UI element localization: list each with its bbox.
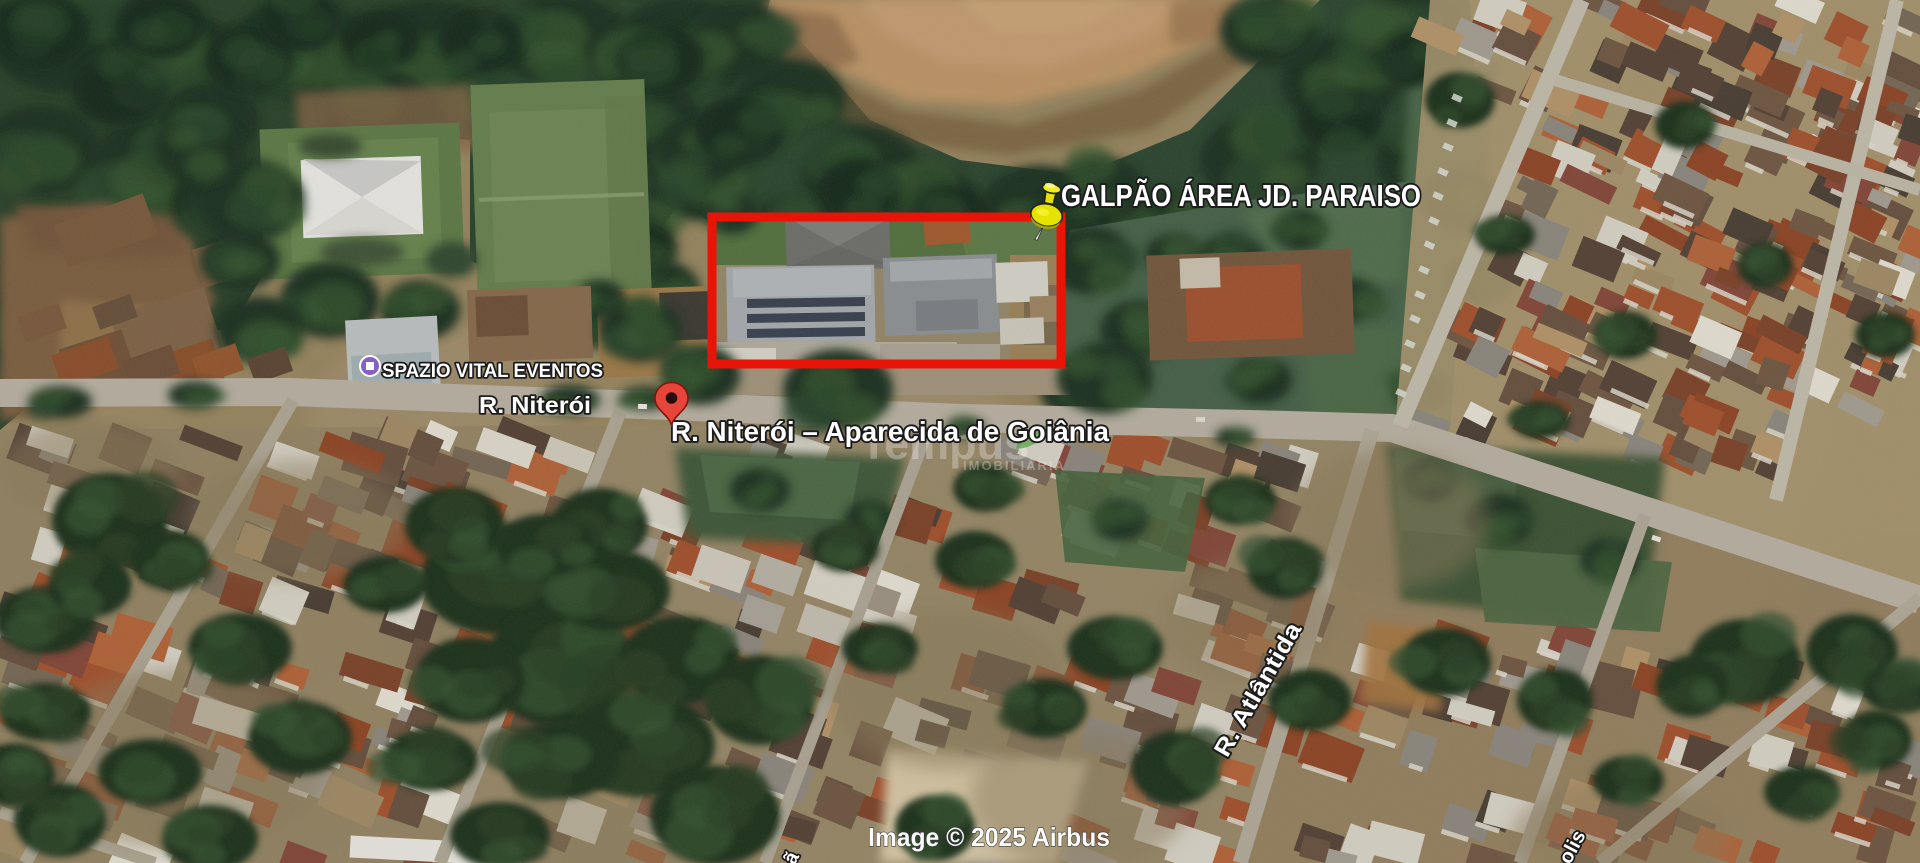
svg-text:R. Niterói: R. Niterói [479,392,591,418]
svg-text:GALPÃO ÁREA JD. PARAISO: GALPÃO ÁREA JD. PARAISO [1061,178,1421,213]
svg-text:Image © 2025 Airbus: Image © 2025 Airbus [868,822,1110,852]
svg-text:SPAZIO VITAL EVENTOS: SPAZIO VITAL EVENTOS [382,361,603,382]
svg-text:IMOBILIÁRIA: IMOBILIÁRIA [963,458,1066,473]
svg-text:R. Niterói – Aparecida de Goiâ: R. Niterói – Aparecida de Goiânia [671,416,1109,447]
